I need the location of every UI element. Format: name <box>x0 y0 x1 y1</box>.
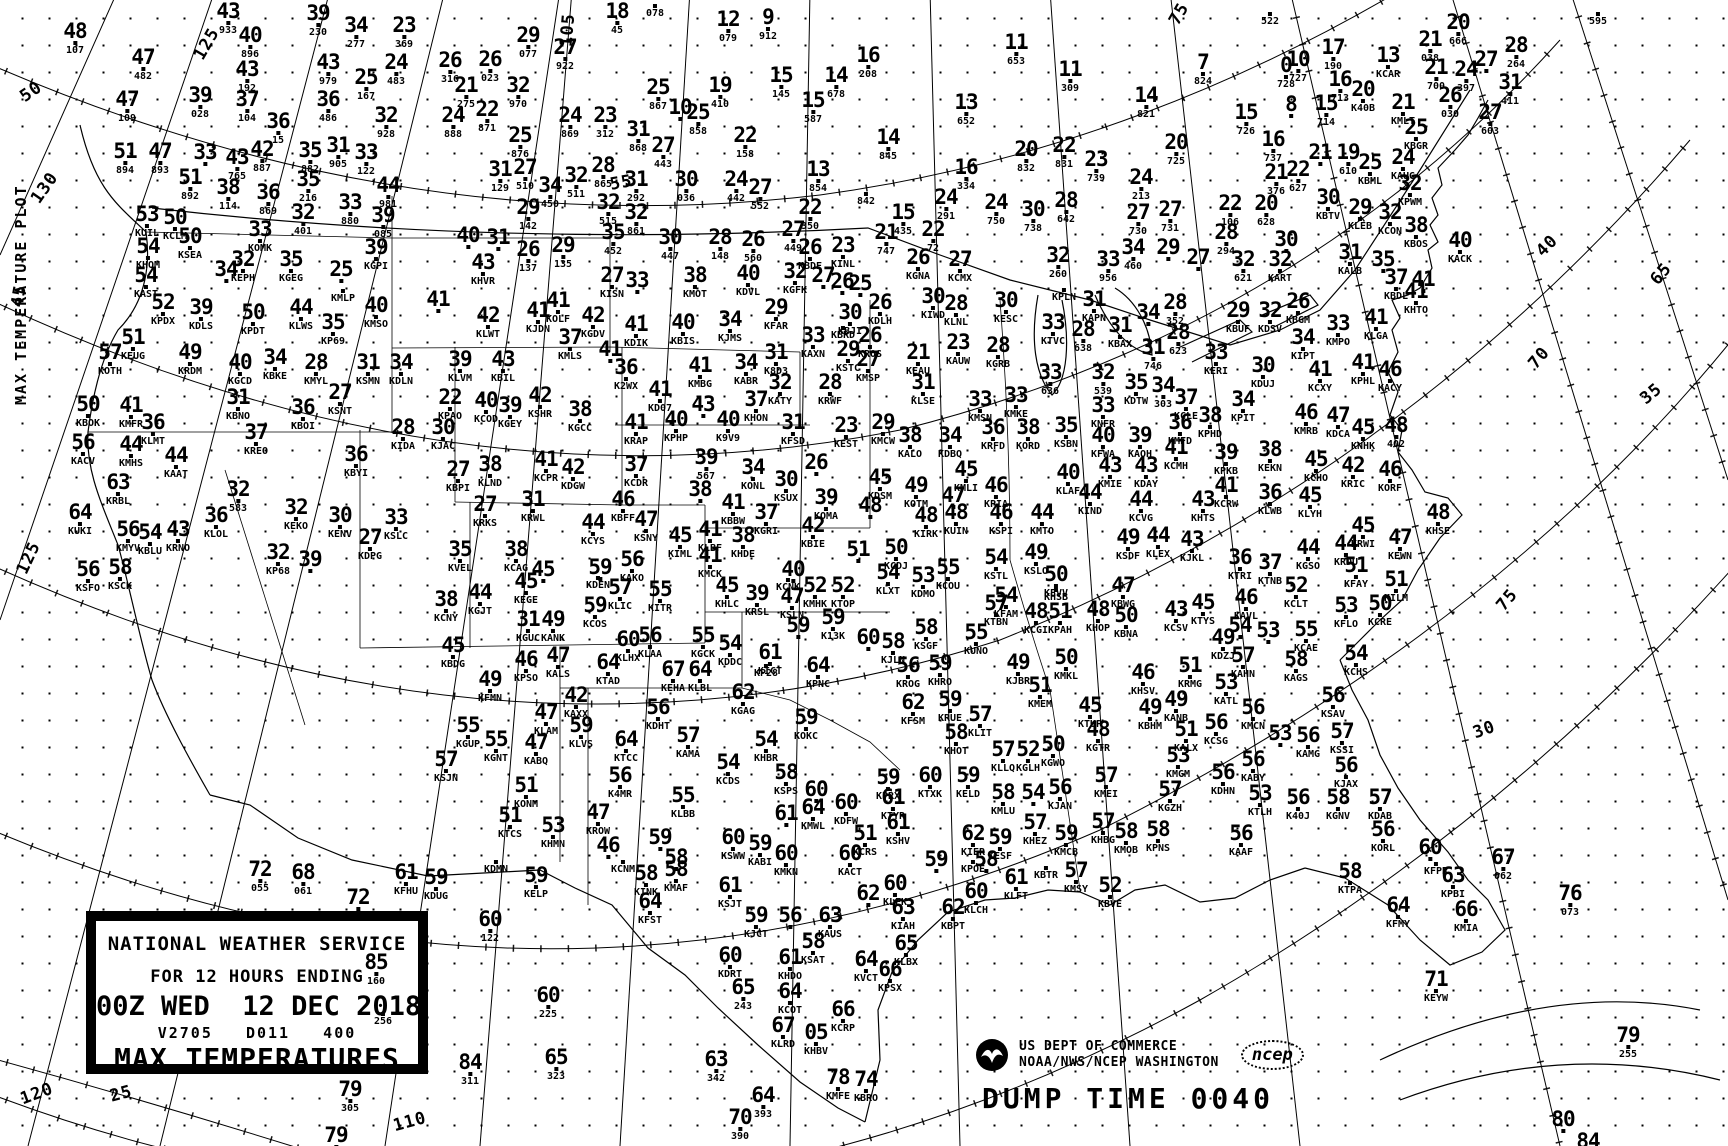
station-temp: 28 <box>708 228 731 247</box>
station-id: KGWO <box>1041 759 1065 769</box>
station-temp: 31 <box>624 170 647 189</box>
station-temp: 59 <box>1054 824 1078 843</box>
station-temp: 16 <box>856 46 879 65</box>
station-temp: 57 <box>676 726 700 745</box>
station-id: KGNV <box>1326 812 1350 822</box>
station-temp: 49 <box>178 343 202 362</box>
station-plot: 58KMLU <box>991 783 1015 817</box>
station-plot: 36KLWB <box>1258 483 1282 517</box>
station-plot: 48KHOP <box>1086 600 1110 634</box>
station-plot: 26KBGM <box>1286 292 1310 326</box>
station-id: 642 <box>1054 215 1077 225</box>
station-plot: 30KSUX <box>774 470 798 504</box>
station-id: KGCC <box>568 424 592 434</box>
station-plot: 56K40J <box>1286 788 1310 822</box>
station-id: 922 <box>553 62 576 72</box>
station-id: 135 <box>551 260 574 270</box>
station-id: KFSM <box>901 717 925 727</box>
station-id: KHTO <box>1404 306 1428 316</box>
station-temp: 51 <box>1384 570 1408 589</box>
station-id: 522 <box>1261 17 1279 27</box>
station-temp: 43 <box>166 520 190 539</box>
station-id: 627 <box>1286 184 1309 194</box>
station-plot: 842 <box>857 192 875 207</box>
station-plot: 55KGNT <box>484 730 508 764</box>
station-temp: 56 <box>1211 763 1235 782</box>
station-id: KJKL <box>1180 554 1204 564</box>
station-temp: 24 <box>384 53 407 72</box>
station-plot: 63KPBI <box>1441 866 1465 900</box>
station-temp: 51 <box>1048 602 1072 621</box>
station-temp: 31 <box>516 610 540 629</box>
station-temp: 60 <box>918 766 942 785</box>
station-plot: 56KSAV <box>1321 686 1345 720</box>
station-plot: 57KHBG <box>1091 812 1115 846</box>
station-id: 401 <box>291 227 314 237</box>
station-id: KDDC <box>718 658 742 668</box>
station-temp: 63 <box>106 473 130 492</box>
station-plot: 35KSBN <box>1054 416 1078 450</box>
station-id: KSNT <box>328 407 352 417</box>
station-plot: 31 <box>486 228 509 252</box>
station-id: KPSX <box>878 984 902 994</box>
station-id: KDPG <box>358 552 382 562</box>
station-temp: 15 <box>801 91 824 110</box>
station-plot: 34KJMS <box>718 310 742 344</box>
station-plot: 53KMGM <box>1166 746 1190 780</box>
station-temp: 32 <box>266 543 290 562</box>
station-temp: 41 <box>721 493 745 512</box>
station-plot: 56KDHT <box>646 698 670 732</box>
station-id: 869 <box>256 207 279 217</box>
station-id: KTVC <box>1041 337 1065 347</box>
station-temp: 42 <box>476 306 500 325</box>
station-id: KBOI <box>291 422 315 432</box>
station-id: 894 <box>113 166 136 176</box>
station-plot: 14678 <box>824 66 847 100</box>
station-temp: 59 <box>794 708 818 727</box>
station-plot: 67KEHA <box>661 660 685 694</box>
station-temp: 14 <box>876 128 899 147</box>
station-id: 587 <box>801 115 824 125</box>
station-plot: 56KCSG <box>1204 713 1228 747</box>
station-id: KRWF <box>818 397 842 407</box>
station-temp: 41 <box>1351 353 1375 372</box>
station-temp: 25 <box>508 126 531 145</box>
station-temp: 59 <box>988 828 1012 847</box>
station-id: 731 <box>1158 224 1181 234</box>
station-plot: 50KBNA <box>1114 606 1138 640</box>
station-plot: 33 <box>625 271 648 295</box>
station-temp: 29 <box>1226 301 1250 320</box>
station-temp: 50 <box>76 395 100 414</box>
station-temp: 20 <box>1351 80 1375 99</box>
station-id: 145 <box>769 90 792 100</box>
station-temp: 05 <box>804 1023 828 1042</box>
station-id: KEYW <box>1424 994 1448 1004</box>
station-plot: 47KSNY <box>634 510 658 544</box>
station-temp: 45 <box>954 460 978 479</box>
station-id: 104 <box>235 114 258 124</box>
station-temp: 27 <box>513 158 536 177</box>
station-plot: 56KORL <box>1371 820 1395 854</box>
station-plot: 27 <box>1186 248 1209 272</box>
station-id: KALS <box>546 670 570 680</box>
station-id: KLMT <box>141 437 165 447</box>
station-id: 511 <box>564 190 587 200</box>
station-temp: 13 <box>806 160 829 179</box>
station-plot: 61KSJT <box>718 876 742 910</box>
station-id: 312 <box>593 130 616 140</box>
station-plot: 8 <box>1285 95 1297 119</box>
station-plot: 37KREO <box>244 423 268 457</box>
station-plot: 50KMKL <box>1054 648 1078 682</box>
station-id: KMFE <box>826 1092 850 1102</box>
station-plot: 46KHSV <box>1131 663 1155 697</box>
station-temp: 51 <box>178 168 201 187</box>
station-temp: 57 <box>98 343 122 362</box>
station-temp: 35 <box>298 141 321 160</box>
station-plot: 44KLEX <box>1146 526 1170 560</box>
station-plot: 38KALO <box>898 426 922 460</box>
station-plot: 60KLHX <box>616 630 640 664</box>
station-id: KFMY <box>1386 920 1410 930</box>
station-id: KSPS <box>774 787 798 797</box>
station-temp: 28 <box>1214 223 1237 242</box>
station-id: KJDN <box>526 325 550 335</box>
station-id: KBPT <box>941 922 965 932</box>
station-plot: 47KROW <box>586 803 610 837</box>
station-plot: 59 <box>786 616 809 640</box>
station-plot: 54KCDS <box>716 753 740 787</box>
station-temp: 41 <box>688 356 712 375</box>
station-id: 036 <box>674 194 697 204</box>
station-plot: 13KCAR <box>1376 46 1400 80</box>
station-temp: 56 <box>1048 778 1072 797</box>
station-plot: 27552 <box>748 178 771 212</box>
station-plot: 30447 <box>658 228 681 262</box>
station-plot: 34 <box>214 260 237 284</box>
station-id: 061 <box>291 887 314 897</box>
station-temp: 28 <box>304 353 328 372</box>
station-id: KALO <box>898 450 922 460</box>
station-plot: 44KMHS <box>119 435 143 469</box>
station-id: KBNA <box>1114 630 1138 640</box>
station-plot: 30KIWD <box>921 287 945 321</box>
station-plot: 28865 <box>591 156 614 190</box>
station-plot: 67062 <box>1491 848 1514 882</box>
station-temp: 38 <box>568 400 592 419</box>
station-id: KTXK <box>918 790 942 800</box>
station-id: KDSV <box>1258 325 1282 335</box>
station-plot: 64KMWL <box>801 798 825 832</box>
station-plot: 56KDHN <box>1211 763 1235 797</box>
station-temp: 44 <box>164 446 188 465</box>
station-temp: 51 <box>1178 656 1202 675</box>
station-temp: 56 <box>1286 788 1310 807</box>
station-temp: 45 <box>668 526 692 545</box>
station-plot: 41KLGA <box>1364 308 1388 342</box>
station-plot: 50KBOK <box>76 395 100 429</box>
station-id: KGLH <box>1016 764 1040 774</box>
station-temp: 54 <box>754 730 778 749</box>
station-id: 230 <box>306 28 329 38</box>
station-temp: 64 <box>68 503 92 522</box>
station-plot: 44KCVG <box>1129 490 1153 524</box>
station-temp: 10 <box>1286 50 1309 69</box>
station-temp: 50 <box>1041 735 1065 754</box>
station-temp: 65 <box>544 1048 567 1067</box>
station-plot: 36KLOL <box>204 506 228 540</box>
station-plot: 57KHEZ <box>1023 813 1047 847</box>
station-id: 912 <box>759 32 777 42</box>
station-plot: 7824 <box>1194 53 1212 87</box>
station-id: 979 <box>316 77 339 87</box>
station-plot: 23KAUW <box>946 333 970 367</box>
station-plot: 32861 <box>624 203 647 237</box>
station-temp: 22 <box>1218 194 1241 213</box>
station-temp: 62 <box>961 824 985 843</box>
station-temp: 17 <box>1321 38 1344 57</box>
station-plot: 41 <box>426 290 449 314</box>
station-temp: 48 <box>1426 503 1450 522</box>
station-id: KDEN <box>586 581 610 591</box>
station-id: KAAT <box>164 470 188 480</box>
station-plot: 31KBAX <box>1108 316 1132 350</box>
station-temp: 21 <box>874 223 897 242</box>
station-id: KRWL <box>521 514 545 524</box>
station-plot: KBTR <box>1034 866 1058 881</box>
station-plot: 51KTCS <box>498 806 522 840</box>
station-plot: 52KCLT <box>1284 576 1308 610</box>
station-plot: 35KVEL <box>448 540 472 574</box>
station-temp: 24 <box>558 106 581 125</box>
station-plot: 35452 <box>601 223 624 257</box>
station-temp: 56 <box>778 906 801 925</box>
station-temp: 27 <box>1478 103 1501 122</box>
station-temp: 36 <box>1228 548 1252 567</box>
station-plot: 47KEWN <box>1388 528 1412 562</box>
station-id: 460 <box>1121 262 1144 272</box>
station-temp: 8 <box>1285 95 1297 114</box>
station-temp: 27 <box>651 136 674 155</box>
station-temp: 23 <box>593 106 616 125</box>
station-temp: 27 <box>1186 248 1209 267</box>
station-plot: 32KDSV <box>1258 301 1282 335</box>
station-plot: 19610 <box>1336 143 1359 177</box>
station-temp: 28 <box>986 336 1010 355</box>
station-id: KSHR <box>528 410 552 420</box>
station-temp: 54 <box>994 586 1018 605</box>
station-temp: 50 <box>241 303 265 322</box>
station-plot: 59 <box>924 850 947 874</box>
station-id: 970 <box>506 100 529 110</box>
station-plot: 44KGJT <box>468 583 492 617</box>
station-plot: 25KBML <box>1358 153 1382 187</box>
station-temp: 57 <box>1368 788 1392 807</box>
station-temp: 30 <box>838 303 862 322</box>
station-temp: 14 <box>824 66 847 85</box>
station-temp: 51 <box>846 540 869 559</box>
station-temp: 56 <box>1321 686 1345 705</box>
station-plot: 45KBDG <box>441 636 465 670</box>
station-id: KFAM <box>994 610 1018 620</box>
station-plot: 57KSJN <box>434 750 458 784</box>
station-plot: 44KLWS <box>289 298 313 332</box>
station-id: KEKN <box>1258 464 1282 474</box>
station-temp: 56 <box>1204 713 1228 732</box>
station-plot: 78KMFE <box>826 1068 850 1102</box>
station-temp: 37 <box>1174 388 1198 407</box>
station-temp: 58 <box>1326 788 1350 807</box>
station-temp: 20 <box>1254 194 1277 213</box>
station-temp: 43 <box>235 60 258 79</box>
station-temp: 39 <box>298 550 321 569</box>
station-id: 867 <box>646 102 669 112</box>
station-id: KMSP <box>856 374 880 384</box>
station-temp: 58 <box>1114 822 1138 841</box>
station-temp: 36 <box>1168 413 1192 432</box>
station-plot: 60KDFW <box>834 793 858 827</box>
station-temp: 64 <box>638 892 662 911</box>
station-plot: 38KBOS <box>1404 216 1428 250</box>
station-temp: 59 <box>956 766 980 785</box>
station-temp: 57 <box>1094 766 1118 785</box>
station-temp: 45 <box>715 576 739 595</box>
station-plot: 64393 <box>751 1086 774 1120</box>
station-id: KALB <box>1338 267 1362 277</box>
station-temp: 33 <box>338 193 361 212</box>
station-plot: 38KGCC <box>568 400 592 434</box>
station-temp: 57 <box>1091 812 1115 831</box>
station-id: KENV <box>328 530 352 540</box>
station-id: KATL <box>1214 697 1238 707</box>
station-plot: 32928 <box>374 106 397 140</box>
station-temp: 54 <box>718 634 742 653</box>
station-id: 603 <box>1478 127 1501 137</box>
station-temp: 58 <box>664 860 688 879</box>
station-temp: 44 <box>1146 526 1170 545</box>
station-plot: 15145 <box>769 66 792 100</box>
station-id: KBML <box>1358 177 1382 187</box>
station-temp: 41 <box>624 315 648 334</box>
station-temp: 56 <box>1241 698 1265 717</box>
station-id: KMLS <box>558 352 582 362</box>
station-plot: 52KPDX <box>151 293 175 327</box>
station-plot: KCNM <box>611 860 635 875</box>
station-temp: 54 <box>1228 616 1251 635</box>
station-plot: 46KACY <box>1378 360 1402 394</box>
station-temp: 59 <box>424 868 448 887</box>
station-temp: 60 <box>834 793 858 812</box>
station-id: KLGA <box>1364 332 1388 342</box>
station-plot: 36K2WX <box>614 358 638 392</box>
station-plot: 38KHDE <box>731 526 755 560</box>
station-temp: 54 <box>1344 644 1368 663</box>
station-plot: 45KIML <box>668 526 692 560</box>
station-id: KESC <box>994 315 1018 325</box>
station-id: KLCH <box>964 906 988 916</box>
station-temp: 58 <box>944 723 968 742</box>
station-id: KPDT <box>241 327 265 337</box>
station-temp: 46 <box>1378 360 1402 379</box>
station-id: KSDF <box>1116 552 1140 562</box>
station-temp: 39 <box>498 396 522 415</box>
station-plot: 65323 <box>544 1048 567 1082</box>
station-temp: 56 <box>646 698 670 717</box>
station-plot: 45KEGE <box>514 572 538 606</box>
station-temp: 23 <box>831 236 855 255</box>
station-plot: 34460 <box>1121 238 1144 272</box>
station-plot: 32KEKO <box>284 498 308 532</box>
station-id: KGJT <box>468 607 492 617</box>
station-plot: 32KP68 <box>266 543 290 577</box>
station-temp: 33 <box>1204 343 1228 362</box>
station-temp: 46 <box>1131 663 1155 682</box>
station-plot: 67KLRD <box>771 1016 795 1050</box>
station-plot: 56 <box>778 906 801 930</box>
station-temp: 72 <box>248 860 271 879</box>
station-plot: 57KGZH <box>1158 780 1182 814</box>
station-temp: 23 <box>392 16 415 35</box>
station-plot: 62 <box>856 884 879 908</box>
station-temp: 30 <box>1251 356 1275 375</box>
station-plot: 43KCSV <box>1164 600 1188 634</box>
station-temp: 16 <box>954 158 977 177</box>
station-id: KHVR <box>471 277 495 287</box>
station-plot: 40KLAF <box>1056 463 1080 497</box>
station-temp: 46 <box>1378 460 1402 479</box>
station-plot: 23312 <box>593 106 616 140</box>
station-temp: 58 <box>1338 862 1362 881</box>
station-id: KGZH <box>1158 804 1182 814</box>
station-temp: 48 <box>1384 416 1407 435</box>
station-temp: 31 <box>781 413 805 432</box>
station-id: 482 <box>131 72 154 82</box>
station-id: 450 <box>538 200 561 210</box>
station-plot: 11653 <box>1004 33 1027 67</box>
station-id: 442 <box>724 194 747 204</box>
station-id: K40B <box>1351 104 1375 114</box>
station-temp: 33 <box>384 508 408 527</box>
station-temp: 56 <box>638 626 662 645</box>
station-id: KRDM <box>178 367 202 377</box>
station-plot: 64KVCT <box>854 950 878 984</box>
station-id: KSAT <box>801 956 825 966</box>
station-temp: 26 <box>906 248 930 267</box>
station-temp: 43 <box>691 395 714 414</box>
station-plot: 46KORF <box>1378 460 1402 494</box>
station-plot: 28KRWF <box>818 373 842 407</box>
station-temp: 44 <box>1296 538 1320 557</box>
station-id: 122 <box>354 167 377 177</box>
station-plot: 11309 <box>1058 60 1081 94</box>
station-temp: 63 <box>1441 866 1465 885</box>
station-temp: 32 <box>1091 363 1114 382</box>
station-id: KIML <box>668 550 692 560</box>
station-temp: 52 <box>1098 876 1122 895</box>
station-id: 305 <box>338 1104 361 1114</box>
station-temp: 56 <box>608 766 632 785</box>
station-plot: 53KFLO <box>1334 596 1358 630</box>
station-id: 311 <box>458 1077 481 1087</box>
station-temp: 67 <box>661 660 685 679</box>
station-plot: 12079 <box>716 10 739 44</box>
station-temp: 36 <box>141 413 165 432</box>
station-temp: 46 <box>1294 403 1318 422</box>
station-plot: 31KLSE <box>911 373 935 407</box>
station-temp: 64 <box>854 950 878 969</box>
